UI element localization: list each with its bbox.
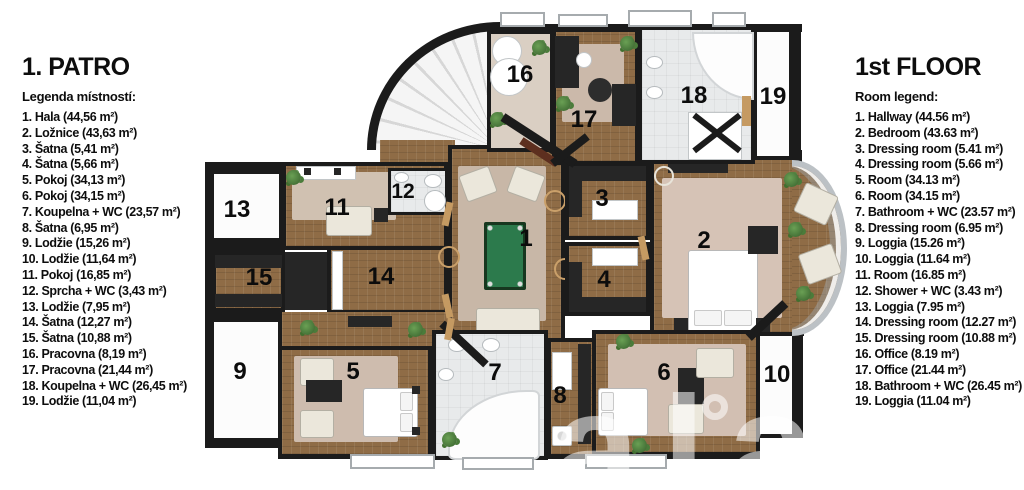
- wardrobe: [578, 344, 591, 444]
- legend-item: 16. Office (8.19 m²): [855, 347, 1022, 363]
- pillow: [724, 310, 752, 326]
- room-label-8: 8: [553, 382, 566, 410]
- plant: [532, 40, 547, 55]
- legend-item: 8. Dressing room (6.95 m²): [855, 221, 1022, 237]
- legend-item: 18. Koupelna + WC (26,45 m²): [22, 379, 187, 395]
- legend-item: 16. Pracovna (8,19 m²): [22, 347, 187, 363]
- room-label-15: 15: [246, 264, 273, 292]
- armchair: [668, 404, 704, 434]
- room-label-16: 16: [507, 61, 534, 89]
- legend-item: 1. Hala (44,56 m²): [22, 110, 187, 126]
- nightstand: [412, 427, 420, 435]
- sink: [646, 56, 663, 69]
- room-label-7: 7: [488, 359, 501, 387]
- legend-item: 5. Pokoj (34,13 m²): [22, 173, 187, 189]
- legend-item: 3. Šatna (5,41 m²): [22, 142, 187, 158]
- bench: [592, 248, 638, 266]
- plant: [556, 96, 571, 111]
- room-label-3: 3: [595, 185, 608, 213]
- room-label-2: 2: [697, 227, 710, 255]
- desk-item: [334, 168, 341, 175]
- door-swing: [544, 190, 566, 212]
- console-table: [348, 316, 392, 327]
- room-label-6: 6: [657, 359, 670, 387]
- window: [628, 10, 692, 27]
- floorplan-image: 1. PATRO Legenda místností: 1. Hala (44,…: [0, 0, 1024, 490]
- legend-item: 15. Šatna (10,88 m²): [22, 331, 187, 347]
- room-label-11: 11: [324, 194, 349, 222]
- pillow: [694, 310, 722, 326]
- plant: [408, 322, 423, 337]
- window: [500, 12, 545, 27]
- office-chair: [576, 52, 592, 68]
- legend-item: 17. Pracovna (21,44 m²): [22, 363, 187, 379]
- desk-item: [304, 168, 311, 175]
- room-label-1: 1: [519, 225, 532, 253]
- stool: [654, 166, 674, 186]
- plant: [300, 320, 315, 335]
- wardrobe: [569, 262, 582, 297]
- window: [712, 12, 746, 27]
- door-swing: [438, 246, 460, 268]
- legend-item: 4. Šatna (5,66 m²): [22, 157, 187, 173]
- legend-czech-title: 1. PATRO: [22, 53, 187, 82]
- shower: [424, 190, 446, 212]
- legend-item: 17. Office (21.44 m²): [855, 363, 1022, 379]
- legend-item: 8. Šatna (6,95 m²): [22, 221, 187, 237]
- window: [558, 14, 608, 27]
- legend-item: 15. Dressing room (10.88 m²): [855, 331, 1022, 347]
- legend-item: 7. Koupelna + WC (23,57 m²): [22, 205, 187, 221]
- legend-item: 11. Pokoj (16,85 m²): [22, 268, 187, 284]
- legend-item: 10. Lodžie (11,64 m²): [22, 252, 187, 268]
- legend-item: 13. Lodžie (7,95 m²): [22, 300, 187, 316]
- sofa-dark: [612, 84, 636, 126]
- legend-item: 14. Dressing room (12.27 m²): [855, 315, 1022, 331]
- room-label-18: 18: [681, 82, 708, 110]
- room-label-10: 10: [764, 361, 791, 389]
- legend-item: 4. Dressing room (5.66 m²): [855, 157, 1022, 173]
- pillow: [601, 392, 614, 411]
- room-label-13: 13: [224, 196, 251, 224]
- room-label-5: 5: [346, 358, 359, 386]
- plant: [788, 222, 803, 237]
- armchair: [300, 410, 334, 438]
- plant: [286, 170, 301, 185]
- tv-cabinet: [748, 226, 778, 254]
- toilet: [424, 174, 442, 188]
- plant: [620, 36, 635, 51]
- plant: [796, 286, 811, 301]
- plant: [616, 334, 631, 349]
- legend-item: 19. Lodžie (11,04 m²): [22, 394, 187, 410]
- legend-item: 5. Room (34.13 m²): [855, 173, 1022, 189]
- room-label-19: 19: [760, 83, 787, 111]
- closet-front: [332, 251, 343, 310]
- side-table: [374, 208, 388, 222]
- legend-item: 12. Sprcha + WC (3,43 m²): [22, 284, 187, 300]
- legend-english: 1st FLOOR Room legend: 1. Hallway (44.56…: [855, 53, 1022, 410]
- wardrobe: [569, 166, 646, 181]
- wardrobe: [569, 181, 582, 217]
- legend-item: 2. Bedroom (43.63 m²): [855, 126, 1022, 142]
- desk: [306, 380, 342, 402]
- legend-item: 1. Hallway (44.56 m²): [855, 110, 1022, 126]
- room-label-14: 14: [368, 263, 395, 291]
- room-label-4: 4: [597, 266, 610, 294]
- legend-item: 7. Bathroom + WC (23.57 m²): [855, 205, 1022, 221]
- wardrobe: [215, 294, 282, 307]
- legend-item: 6. Room (34.15 m²): [855, 189, 1022, 205]
- legend-item: 18. Bathroom + WC (26.45 m²): [855, 379, 1022, 395]
- legend-item: 9. Lodžie (15,26 m²): [22, 236, 187, 252]
- closet-block: [285, 252, 327, 310]
- nightstand: [412, 386, 420, 394]
- legend-item: 14. Šatna (12,27 m²): [22, 315, 187, 331]
- legend-item: 2. Ložnice (43,63 m²): [22, 126, 187, 142]
- legend-item: 3. Dressing room (5.41 m²): [855, 142, 1022, 158]
- spiral-staircase: [367, 22, 500, 150]
- sink: [646, 86, 663, 99]
- plant: [442, 432, 457, 447]
- bench: [742, 96, 751, 126]
- legend-item: 19. Loggia (11.04 m²): [855, 394, 1022, 410]
- window: [462, 457, 534, 470]
- legend-english-subtitle: Room legend:: [855, 89, 1022, 104]
- legend-czech-subtitle: Legenda místností:: [22, 89, 187, 104]
- legend-item: 11. Room (16.85 m²): [855, 268, 1022, 284]
- room-label-12: 12: [391, 180, 414, 204]
- legend-item: 10. Loggia (11.64 m²): [855, 252, 1022, 268]
- wardrobe: [569, 297, 646, 312]
- legend-item: 6. Pokoj (34,15 m²): [22, 189, 187, 205]
- legend-item: 9. Loggia (15.26 m²): [855, 236, 1022, 252]
- window: [350, 454, 435, 469]
- legend-czech: 1. PATRO Legenda místností: 1. Hala (44,…: [22, 53, 187, 410]
- floor-plan: 1 2 3 4 5 6 7 8 9 10 11 12 13 14 15 16 1…: [200, 0, 848, 490]
- pillow: [400, 392, 413, 411]
- room-label-17: 17: [571, 106, 598, 134]
- room-label-9: 9: [233, 358, 246, 386]
- toilet: [438, 368, 454, 381]
- legend-english-title: 1st FLOOR: [855, 53, 1022, 82]
- ottoman: [588, 78, 612, 102]
- armchair: [696, 348, 734, 378]
- legend-item: 13. Loggia (7.95 m²): [855, 300, 1022, 316]
- plant: [784, 172, 799, 187]
- window: [585, 454, 667, 469]
- sink: [482, 338, 500, 352]
- washer: [552, 426, 572, 446]
- legend-item: 12. Shower + WC (3.43 m²): [855, 284, 1022, 300]
- pillow: [601, 412, 614, 431]
- plant: [632, 438, 647, 453]
